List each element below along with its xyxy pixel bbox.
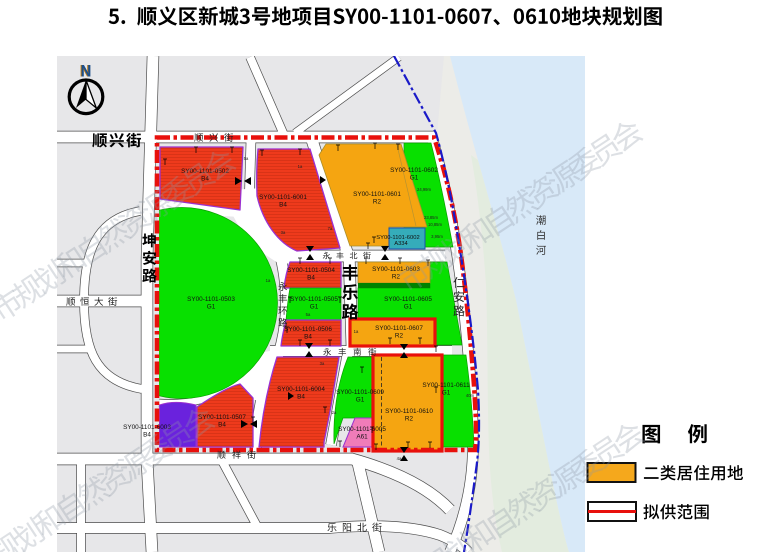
svg-text:10,85m: 10,85m xyxy=(428,222,442,227)
svg-text:B4: B4 xyxy=(297,394,305,401)
svg-text:SY00-1101-0506: SY00-1101-0506 xyxy=(284,326,332,333)
svg-text:40m: 40m xyxy=(466,393,475,398)
svg-text:SY00-1101-0601: SY00-1101-0601 xyxy=(353,191,401,198)
svg-text:SY00-1101-0607: SY00-1101-0607 xyxy=(375,325,423,332)
svg-text:SY00-1101-0602: SY00-1101-0602 xyxy=(390,167,438,174)
svg-text:R2: R2 xyxy=(405,416,414,423)
svg-text:G1: G1 xyxy=(410,175,419,182)
svg-text:SY00-1101-6004: SY00-1101-6004 xyxy=(277,386,325,393)
svg-text:5a: 5a xyxy=(306,312,311,317)
svg-text:1a: 1a xyxy=(298,164,303,169)
svg-text:SY00-1101-0605: SY00-1101-0605 xyxy=(384,296,432,303)
svg-text:3,95m: 3,95m xyxy=(431,234,443,239)
svg-text:3a: 3a xyxy=(281,230,286,235)
svg-text:B4: B4 xyxy=(304,334,312,341)
svg-text:SY00-1101-0611: SY00-1101-0611 xyxy=(422,382,470,389)
svg-text:3a: 3a xyxy=(320,361,325,366)
svg-text:SY00-1101-6005: SY00-1101-6005 xyxy=(338,426,386,433)
svg-text:23,85m: 23,85m xyxy=(424,215,438,220)
svg-text:G1: G1 xyxy=(207,304,216,311)
svg-text:A334: A334 xyxy=(394,241,408,247)
svg-text:B4: B4 xyxy=(307,275,315,282)
svg-text:B4: B4 xyxy=(218,422,226,429)
svg-text:2a: 2a xyxy=(332,410,337,415)
svg-text:SY00-1101-6001: SY00-1101-6001 xyxy=(259,194,307,201)
svg-text:R2: R2 xyxy=(395,333,404,340)
svg-text:G1: G1 xyxy=(310,304,319,311)
svg-text:SY00-1101-0610: SY00-1101-0610 xyxy=(385,408,433,415)
svg-text:B4: B4 xyxy=(279,202,287,209)
svg-text:1a: 1a xyxy=(354,329,359,334)
svg-text:B4: B4 xyxy=(143,432,151,439)
svg-text:SY00-1101-0609: SY00-1101-0609 xyxy=(336,389,384,396)
svg-text:G1: G1 xyxy=(356,397,365,404)
svg-text:5a: 5a xyxy=(244,156,249,161)
svg-text:SY00-1101-0503: SY00-1101-0503 xyxy=(187,296,235,303)
svg-text:24,99m: 24,99m xyxy=(417,187,431,192)
svg-text:SY00-1101-0505: SY00-1101-0505 xyxy=(290,296,338,303)
svg-text:1a: 1a xyxy=(266,278,271,283)
svg-text:7a: 7a xyxy=(328,226,333,231)
svg-text:G1: G1 xyxy=(404,304,413,311)
svg-text:G1: G1 xyxy=(442,390,451,397)
svg-text:R2: R2 xyxy=(373,199,382,206)
svg-text:4a: 4a xyxy=(397,456,402,461)
svg-text:SY00-1101-0504: SY00-1101-0504 xyxy=(287,267,335,274)
svg-text:A61: A61 xyxy=(356,434,368,441)
